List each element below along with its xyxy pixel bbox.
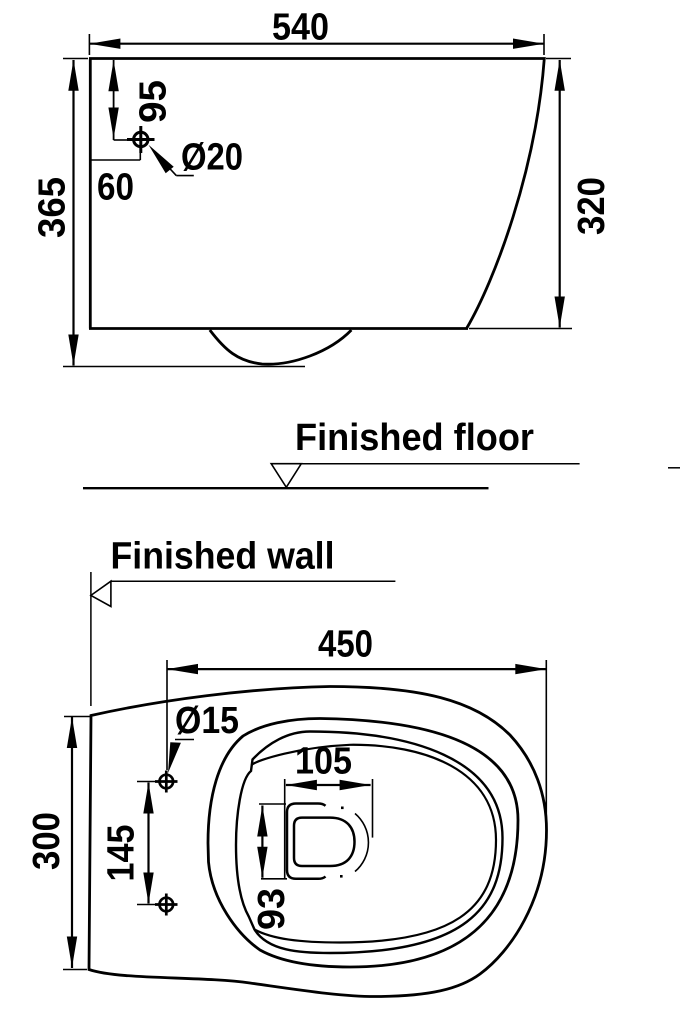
svg-text:Finished wall: Finished wall [111,536,335,578]
svg-text:320: 320 [571,177,613,235]
svg-text:145: 145 [101,825,143,882]
svg-text:60: 60 [97,167,134,209]
svg-text:365: 365 [32,177,74,238]
svg-text:93: 93 [251,888,293,930]
svg-text:Finished floor: Finished floor [295,417,534,459]
svg-text:450: 450 [318,624,373,666]
svg-text:105: 105 [295,741,352,783]
svg-text:Ø15: Ø15 [175,700,239,742]
svg-text:540: 540 [272,7,329,49]
svg-text:Ø20: Ø20 [181,137,243,179]
svg-text:95: 95 [133,80,175,123]
svg-text:300: 300 [26,812,68,870]
